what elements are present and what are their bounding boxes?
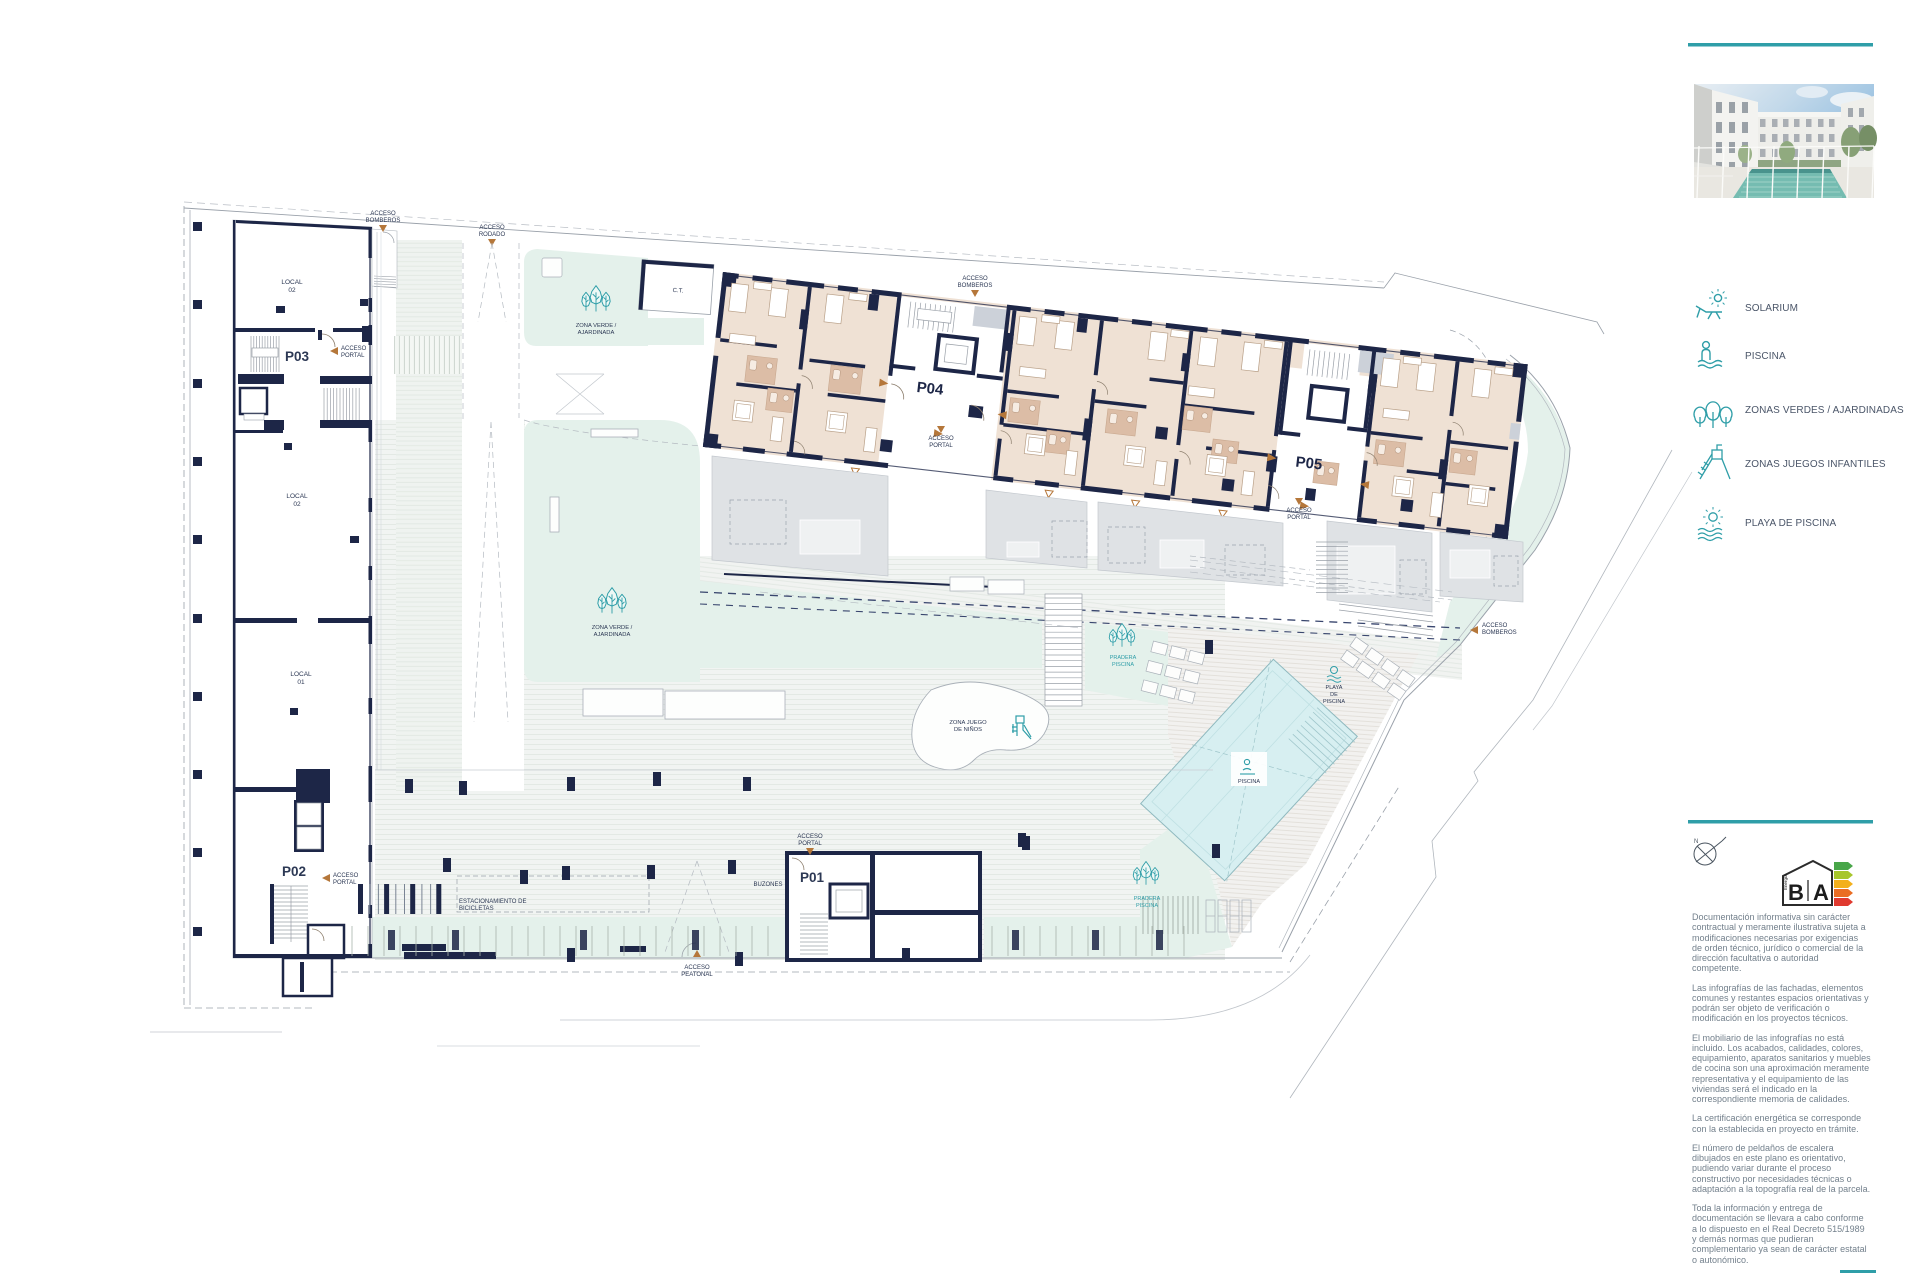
svg-text:PRADERA: PRADERA xyxy=(1110,655,1137,661)
svg-text:BOMBEROS: BOMBEROS xyxy=(1482,630,1517,636)
svg-text:PEATONAL: PEATONAL xyxy=(681,972,713,978)
svg-text:BICICLETAS: BICICLETAS xyxy=(459,906,494,912)
svg-text:PISCINA: PISCINA xyxy=(1238,779,1260,785)
svg-text:01: 01 xyxy=(297,679,305,686)
svg-text:PORTAL: PORTAL xyxy=(333,880,357,886)
svg-text:LOCAL: LOCAL xyxy=(281,279,303,286)
svg-text:BUZONES: BUZONES xyxy=(753,882,782,888)
svg-text:PORTAL: PORTAL xyxy=(929,443,953,449)
svg-text:ACCESO: ACCESO xyxy=(341,346,367,352)
svg-text:BOMBEROS: BOMBEROS xyxy=(958,283,993,289)
svg-text:AJARDINADA: AJARDINADA xyxy=(594,632,631,638)
svg-text:PLAYA: PLAYA xyxy=(1326,685,1343,691)
svg-text:Energía: Energía xyxy=(1783,874,1788,890)
svg-text:N: N xyxy=(1694,839,1698,845)
svg-text:ACCESO: ACCESO xyxy=(928,436,954,442)
svg-text:PISCINA: PISCINA xyxy=(1323,699,1345,705)
svg-text:ACCESO: ACCESO xyxy=(1286,508,1312,514)
svg-text:ACCESO: ACCESO xyxy=(1482,623,1508,629)
svg-text:ZONA VERDE /: ZONA VERDE / xyxy=(592,625,633,631)
svg-text:P01: P01 xyxy=(800,870,825,885)
svg-text:C.T.: C.T. xyxy=(672,288,683,295)
svg-text:ESTACIONAMIENTO DE: ESTACIONAMIENTO DE xyxy=(459,899,526,905)
svg-text:PORTAL: PORTAL xyxy=(798,841,822,847)
svg-text:RODADO: RODADO xyxy=(479,232,506,238)
svg-text:PISCINA: PISCINA xyxy=(1112,662,1134,668)
svg-text:A: A xyxy=(1813,880,1829,905)
svg-text:ACCESO: ACCESO xyxy=(797,834,823,840)
svg-text:P05: P05 xyxy=(1295,454,1323,474)
svg-text:PORTAL: PORTAL xyxy=(1287,515,1311,521)
svg-text:PRADERA: PRADERA xyxy=(1134,896,1161,902)
svg-text:LOCAL: LOCAL xyxy=(286,493,308,500)
svg-text:ACCESO: ACCESO xyxy=(333,873,359,879)
svg-text:B: B xyxy=(1788,880,1804,905)
svg-text:DE NIÑOS: DE NIÑOS xyxy=(954,726,982,733)
svg-text:P03: P03 xyxy=(285,349,310,364)
svg-text:BOMBEROS: BOMBEROS xyxy=(366,218,401,224)
svg-text:ACCESO: ACCESO xyxy=(479,225,505,231)
svg-text:ZONA VERDE /: ZONA VERDE / xyxy=(576,323,617,329)
svg-text:ACCESO: ACCESO xyxy=(684,965,710,971)
svg-text:AJARDINADA: AJARDINADA xyxy=(578,330,615,336)
svg-text:02: 02 xyxy=(288,287,296,294)
svg-text:ACCESO: ACCESO xyxy=(962,276,988,282)
svg-text:P04: P04 xyxy=(916,379,945,399)
svg-text:ZONA JUEGO: ZONA JUEGO xyxy=(949,720,987,726)
svg-text:P02: P02 xyxy=(282,864,306,879)
svg-text:PISCINA: PISCINA xyxy=(1136,903,1158,909)
svg-text:DE: DE xyxy=(1330,692,1338,698)
svg-text:ACCESO: ACCESO xyxy=(370,211,396,217)
svg-text:02: 02 xyxy=(293,501,301,508)
svg-text:PORTAL: PORTAL xyxy=(341,353,365,359)
svg-text:LOCAL: LOCAL xyxy=(290,671,312,678)
